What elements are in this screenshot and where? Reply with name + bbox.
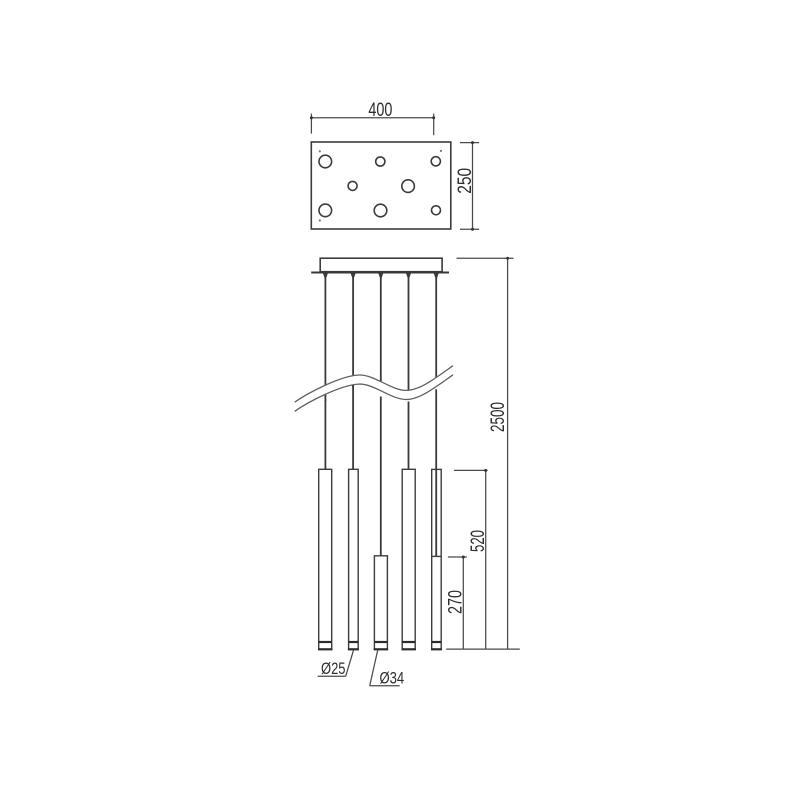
svg-text:250: 250 — [454, 168, 476, 194]
svg-text:520: 520 — [467, 530, 489, 552]
svg-text:Ø34: Ø34 — [380, 670, 405, 688]
svg-text:400: 400 — [368, 99, 392, 121]
svg-text:270: 270 — [444, 590, 466, 614]
svg-text:2500: 2500 — [487, 402, 509, 432]
svg-text:Ø25: Ø25 — [321, 660, 346, 678]
